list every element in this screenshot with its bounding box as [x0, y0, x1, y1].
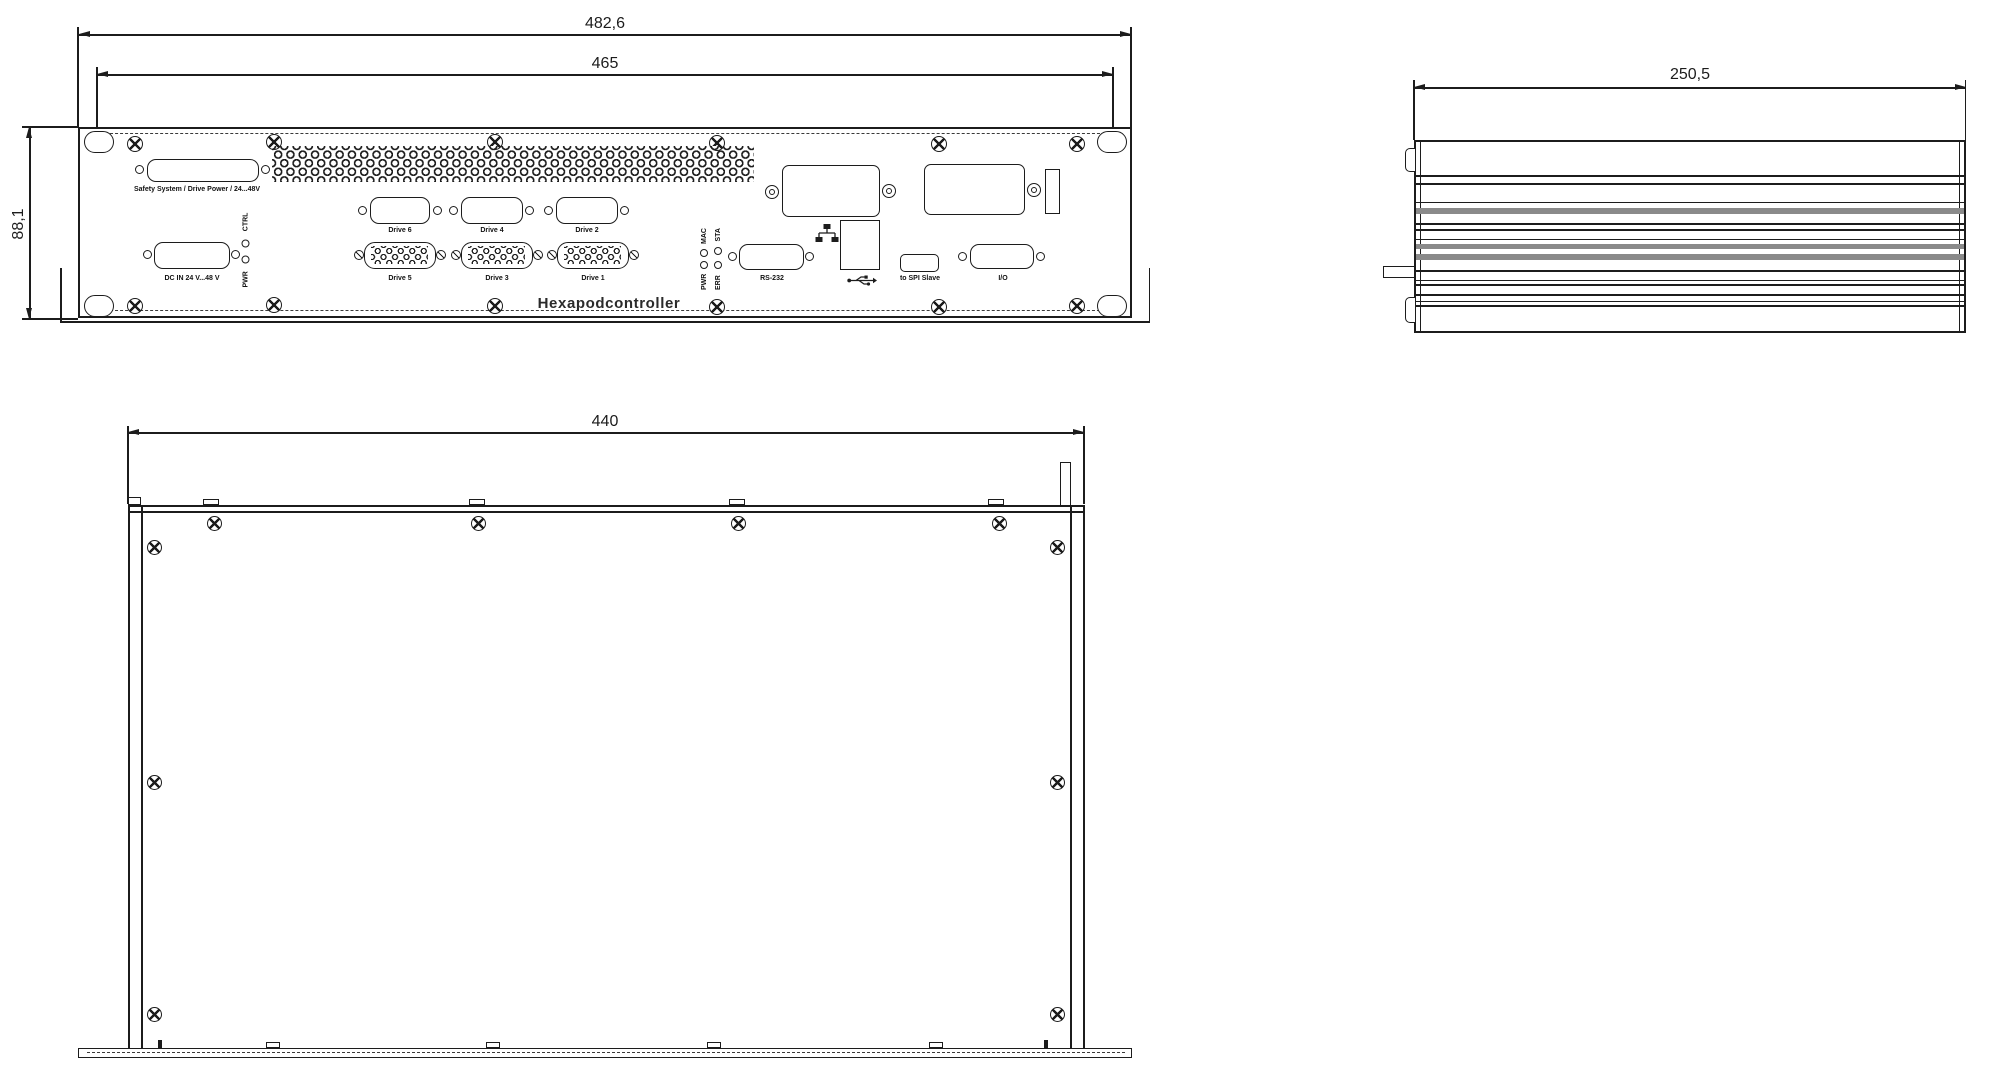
vent-holes-grid: [272, 146, 754, 182]
rs232-label: RS-232: [707, 275, 837, 284]
dim-top-width-ext-right: [1083, 426, 1085, 504]
side-inner-edge-left: [1420, 142, 1421, 331]
rj45-usb-module: [840, 220, 880, 270]
connector-mount-hole-icon: [143, 250, 152, 259]
slot-screw-hole-inner: [1031, 187, 1038, 194]
narrow-slot-opening: [1045, 169, 1060, 214]
rear-edge-tab: [203, 499, 219, 505]
dim-arrow-icon: [79, 31, 90, 37]
fin-line: [1416, 270, 1964, 272]
front-side-lip-right: [1149, 268, 1151, 322]
flange-tick: [158, 1040, 162, 1048]
screw-icon: [1050, 540, 1065, 555]
screw-icon: [931, 299, 947, 315]
screw-icon: [731, 516, 746, 531]
side-inner-edge-right: [1959, 142, 1960, 331]
dc-in-connector: [154, 242, 230, 269]
dim-arrow-icon: [128, 429, 139, 435]
top-view-inner-right-line: [1070, 507, 1072, 1050]
flange-tab: [707, 1042, 721, 1048]
rear-edge-tab: [729, 499, 745, 505]
io-label: I/O: [938, 275, 1068, 284]
connector-mount-hole-icon: [544, 206, 553, 215]
led-icon: [242, 255, 250, 263]
connector-mount-hole-icon: [261, 165, 270, 174]
pin-grid: [371, 246, 428, 264]
dim-arrow-icon: [1414, 84, 1425, 90]
screw-icon: [931, 136, 947, 152]
dim-side-depth-line: [1414, 87, 1966, 89]
fin-line: [1416, 305, 1964, 307]
dim-side-depth-label: 250,5: [1585, 66, 1795, 84]
dim-front-outer-ext-right: [1130, 27, 1132, 127]
mounting-slot-icon: [1097, 131, 1127, 153]
drive-6-connector: [370, 197, 430, 224]
dim-arrow-icon: [26, 127, 32, 138]
drive-2-label: Drive 2: [537, 227, 637, 236]
centerline-top: [90, 133, 1120, 134]
led-icon: [714, 261, 722, 269]
drive-4-label: Drive 4: [442, 227, 542, 236]
screw-icon: [147, 540, 162, 555]
fin-line: [1416, 294, 1964, 296]
jack-screw-icon: [436, 250, 446, 260]
fin-line: [1416, 175, 1964, 177]
slot-screw-hole-icon: [765, 185, 779, 199]
dim-front-outer-ext-left: [77, 27, 79, 127]
dim-front-height-label: 88,1: [10, 189, 28, 259]
fin-line: [1416, 280, 1964, 281]
slot-screw-hole-icon: [882, 184, 896, 198]
top-view-inner-left-line: [141, 507, 143, 1050]
led-icon: [242, 239, 250, 247]
pin-grid: [564, 246, 621, 264]
connector-mount-hole-icon: [449, 206, 458, 215]
spi-slave-connector: [900, 254, 939, 272]
drive-6-label: Drive 6: [350, 227, 450, 236]
module-slot-opening: [782, 165, 880, 217]
pin-grid: [468, 246, 525, 264]
top-view-inner-top-line: [130, 511, 1083, 513]
led-label-ctrl: CTRL: [242, 213, 249, 232]
dim-arrow-icon: [1120, 31, 1131, 37]
jack-screw-icon: [547, 250, 557, 260]
connector-mount-hole-icon: [958, 252, 967, 261]
drive-4-connector: [461, 197, 523, 224]
connector-mount-hole-icon: [620, 206, 629, 215]
drive-3-connector: [461, 242, 533, 269]
fin-line: [1416, 229, 1964, 231]
front-base-edge: [60, 321, 1150, 323]
dim-arrow-icon: [1955, 84, 1966, 90]
rear-edge-tab: [128, 497, 141, 505]
ethernet-icon: [815, 224, 839, 242]
rear-edge-tab: [988, 499, 1004, 505]
dim-front-inner-line: [97, 74, 1113, 76]
safety-power-connector: [147, 159, 259, 182]
dim-top-width-ext-left: [127, 426, 129, 504]
screw-icon: [1069, 136, 1085, 152]
rs232-connector: [739, 244, 804, 270]
dim-arrow-icon: [97, 71, 108, 77]
side-connector-pin: [1383, 266, 1415, 278]
fin-line: [1416, 239, 1964, 240]
fin-line: [1416, 244, 1964, 249]
screw-icon: [1050, 775, 1065, 790]
rear-antenna-pin: [1060, 462, 1071, 506]
fin-line: [1416, 301, 1964, 302]
safety-power-label: Safety System / Drive Power / 24...48V: [134, 186, 374, 195]
connector-mount-hole-icon: [525, 206, 534, 215]
fin-line: [1416, 284, 1964, 286]
dim-arrow-icon: [1102, 71, 1113, 77]
screw-icon: [127, 298, 143, 314]
connector-mount-hole-icon: [135, 165, 144, 174]
fin-line: [1416, 254, 1964, 260]
slot-screw-hole-inner: [769, 189, 776, 196]
technical-drawing-canvas: 482,6 465 88,1 S: [0, 0, 2000, 1089]
screw-icon: [1050, 1007, 1065, 1022]
jack-screw-icon: [629, 250, 639, 260]
device-title: Hexapodcontroller: [484, 295, 734, 312]
front-side-lip-left: [60, 268, 62, 322]
flange-tick: [1044, 1040, 1048, 1048]
dim-arrow-icon: [26, 308, 32, 319]
led-icon: [714, 247, 722, 255]
led-label-pwr: PWR: [242, 271, 249, 287]
rear-edge-tab: [469, 499, 485, 505]
top-view-body: [128, 505, 1085, 1048]
dim-front-inner-label: 465: [500, 55, 710, 73]
dim-top-width-label: 440: [500, 413, 710, 431]
drive-3-label: Drive 3: [447, 275, 547, 284]
drive-1-label: Drive 1: [543, 275, 643, 284]
jack-screw-icon: [354, 250, 364, 260]
dim-front-outer-label: 482,6: [500, 15, 710, 33]
led-group-pwr-ctrl: PWR CTRL: [239, 213, 253, 288]
slot-screw-hole-icon: [1027, 183, 1041, 197]
fin-line: [1416, 208, 1964, 214]
screw-icon: [127, 136, 143, 152]
dim-top-width-line: [128, 432, 1084, 434]
drive-2-connector: [556, 197, 618, 224]
screw-icon: [147, 775, 162, 790]
module-slot-opening: [924, 164, 1025, 215]
flange-tab: [929, 1042, 943, 1048]
flange-centerline: [87, 1052, 1125, 1053]
mounting-slot-icon: [84, 295, 114, 317]
led-label-mac: MAC: [701, 228, 708, 244]
side-view-housing: [1414, 140, 1966, 333]
fin-line: [1416, 202, 1964, 203]
drive-5-label: Drive 5: [350, 275, 450, 284]
screw-icon: [266, 297, 282, 313]
dim-front-height-line: [29, 127, 31, 319]
dim-arrow-icon: [1073, 429, 1084, 435]
screw-icon: [1069, 298, 1085, 314]
dim-front-outer-line: [79, 34, 1131, 36]
fin-line: [1416, 183, 1964, 185]
led-icon: [700, 249, 708, 257]
flange-tab: [266, 1042, 280, 1048]
led-label-sta: STA: [715, 228, 722, 241]
led-icon: [700, 261, 708, 269]
slot-screw-hole-inner: [886, 188, 893, 195]
front-panel-flange: [78, 1048, 1132, 1058]
screw-icon: [471, 516, 486, 531]
connector-mount-hole-icon: [1036, 252, 1045, 261]
mounting-slot-icon: [1097, 295, 1127, 317]
mounting-slot-icon: [84, 131, 114, 153]
flange-tab: [486, 1042, 500, 1048]
drive-1-connector: [557, 242, 629, 269]
front-view-panel: Safety System / Drive Power / 24...48V D…: [78, 127, 1132, 318]
connector-mount-hole-icon: [433, 206, 442, 215]
connector-mount-hole-icon: [358, 206, 367, 215]
screw-icon: [207, 516, 222, 531]
side-front-tab: [1405, 148, 1416, 172]
side-front-tab: [1405, 297, 1416, 323]
connector-mount-hole-icon: [728, 252, 737, 261]
jack-screw-icon: [451, 250, 461, 260]
io-connector: [970, 244, 1034, 269]
screw-icon: [992, 516, 1007, 531]
connector-mount-hole-icon: [805, 252, 814, 261]
drive-5-connector: [364, 242, 436, 269]
jack-screw-icon: [533, 250, 543, 260]
screw-icon: [147, 1007, 162, 1022]
fin-line: [1416, 223, 1964, 225]
